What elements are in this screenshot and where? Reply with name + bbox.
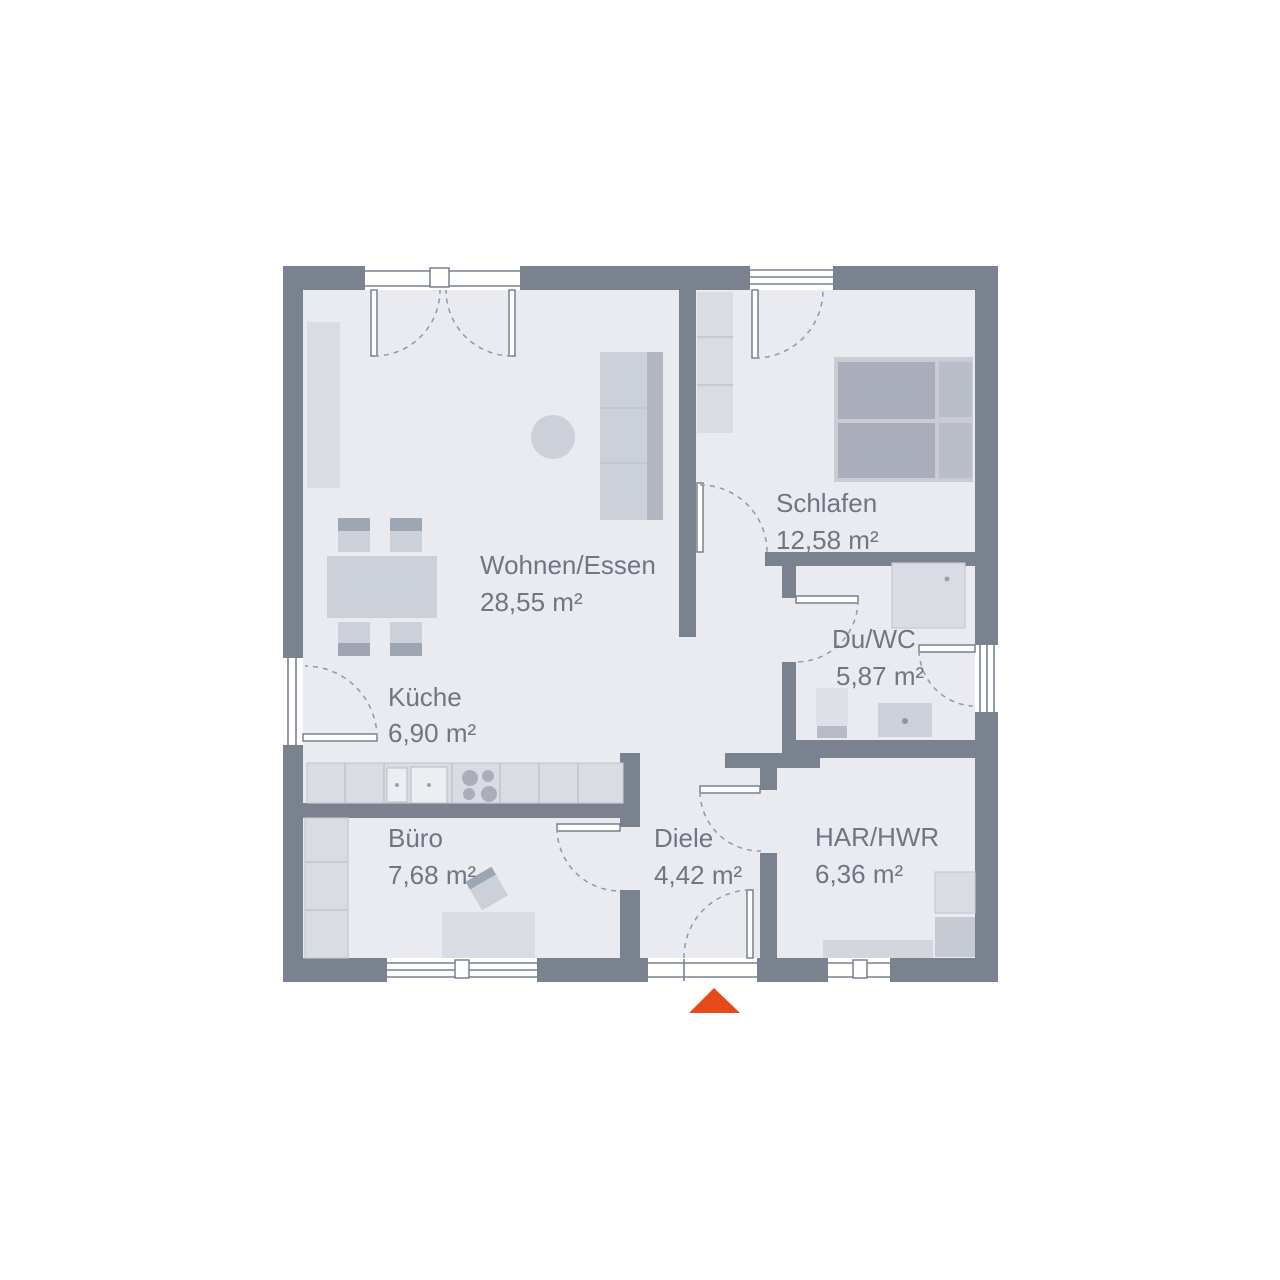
wall-har-west-upper <box>760 768 777 790</box>
room-label-diele: Diele <box>654 823 713 853</box>
shower-drain-dot <box>945 577 950 582</box>
entrance-door-window <box>648 958 757 982</box>
utility-counter <box>823 940 933 958</box>
wardrobe <box>697 292 733 433</box>
room-area-duwc: 5,87 m² <box>836 661 924 691</box>
room-label-har: HAR/HWR <box>815 822 939 852</box>
coffee-table <box>531 415 575 459</box>
wall-kueche-buero <box>303 803 640 818</box>
room-area-schlafen: 12,58 m² <box>776 525 879 555</box>
chair-back <box>338 518 370 531</box>
room-label-wohnen: Wohnen/Essen <box>480 550 656 580</box>
pillow <box>939 362 972 417</box>
drain-dot <box>427 783 431 787</box>
washer <box>935 872 975 913</box>
shower <box>892 563 965 628</box>
room-label-schlafen: Schlafen <box>776 488 877 518</box>
toilet-cistern <box>817 726 847 738</box>
wall-duwc-west-lower <box>782 662 796 740</box>
chair-seat <box>338 531 370 552</box>
room-area-kueche: 6,90 m² <box>388 718 476 748</box>
har-window <box>828 958 890 982</box>
kitchen-counter <box>307 763 623 803</box>
sofa-seat <box>600 352 647 520</box>
wall-wohnen-schlafen <box>679 290 696 637</box>
room-area-diele: 4,42 m² <box>654 860 742 890</box>
chair-seat <box>390 531 422 552</box>
wall-corridor-south <box>725 753 820 768</box>
floor-plan-page: Wohnen/Essen 28,55 m² Schlafen 12,58 m² … <box>0 0 1280 1280</box>
room-area-wohnen: 28,55 m² <box>480 587 583 617</box>
floor-plan: Wohnen/Essen 28,55 m² Schlafen 12,58 m² … <box>0 0 1280 1280</box>
dining-table <box>327 556 437 618</box>
door-handle-box <box>430 268 449 287</box>
basin-drain-dot <box>902 718 908 724</box>
kueche-window <box>283 658 303 745</box>
chair-back <box>390 643 422 656</box>
chair-back <box>338 643 370 656</box>
entrance-arrow-icon <box>689 988 740 1013</box>
desk <box>442 912 535 958</box>
dryer <box>935 917 975 957</box>
chair-seat <box>390 622 422 643</box>
wall-duwc-west-upper <box>782 566 796 598</box>
terrace-double-door-window <box>365 266 520 290</box>
toilet <box>816 688 848 726</box>
buero-window <box>387 958 537 982</box>
room-area-har: 6,36 m² <box>815 859 903 889</box>
mattress <box>838 362 935 419</box>
room-label-kueche: Küche <box>388 682 462 712</box>
window-handle-box <box>853 960 867 978</box>
wall-buero-east-lower <box>620 890 640 958</box>
chair-seat <box>338 622 370 643</box>
chair-back <box>390 518 422 531</box>
window-handle-box <box>455 960 469 978</box>
room-label-duwc: Du/WC <box>832 624 916 654</box>
schlafen-window <box>750 266 833 290</box>
sofa-back <box>647 352 663 520</box>
sideboard <box>307 322 340 488</box>
duwc-window <box>975 645 998 712</box>
room-area-buero: 7,68 m² <box>388 860 476 890</box>
faucet-dot <box>395 783 399 787</box>
wall-har-west-lower <box>760 853 777 958</box>
pillow <box>939 423 972 478</box>
room-label-buero: Büro <box>388 823 443 853</box>
mattress <box>838 423 935 478</box>
office-shelf <box>305 818 348 958</box>
